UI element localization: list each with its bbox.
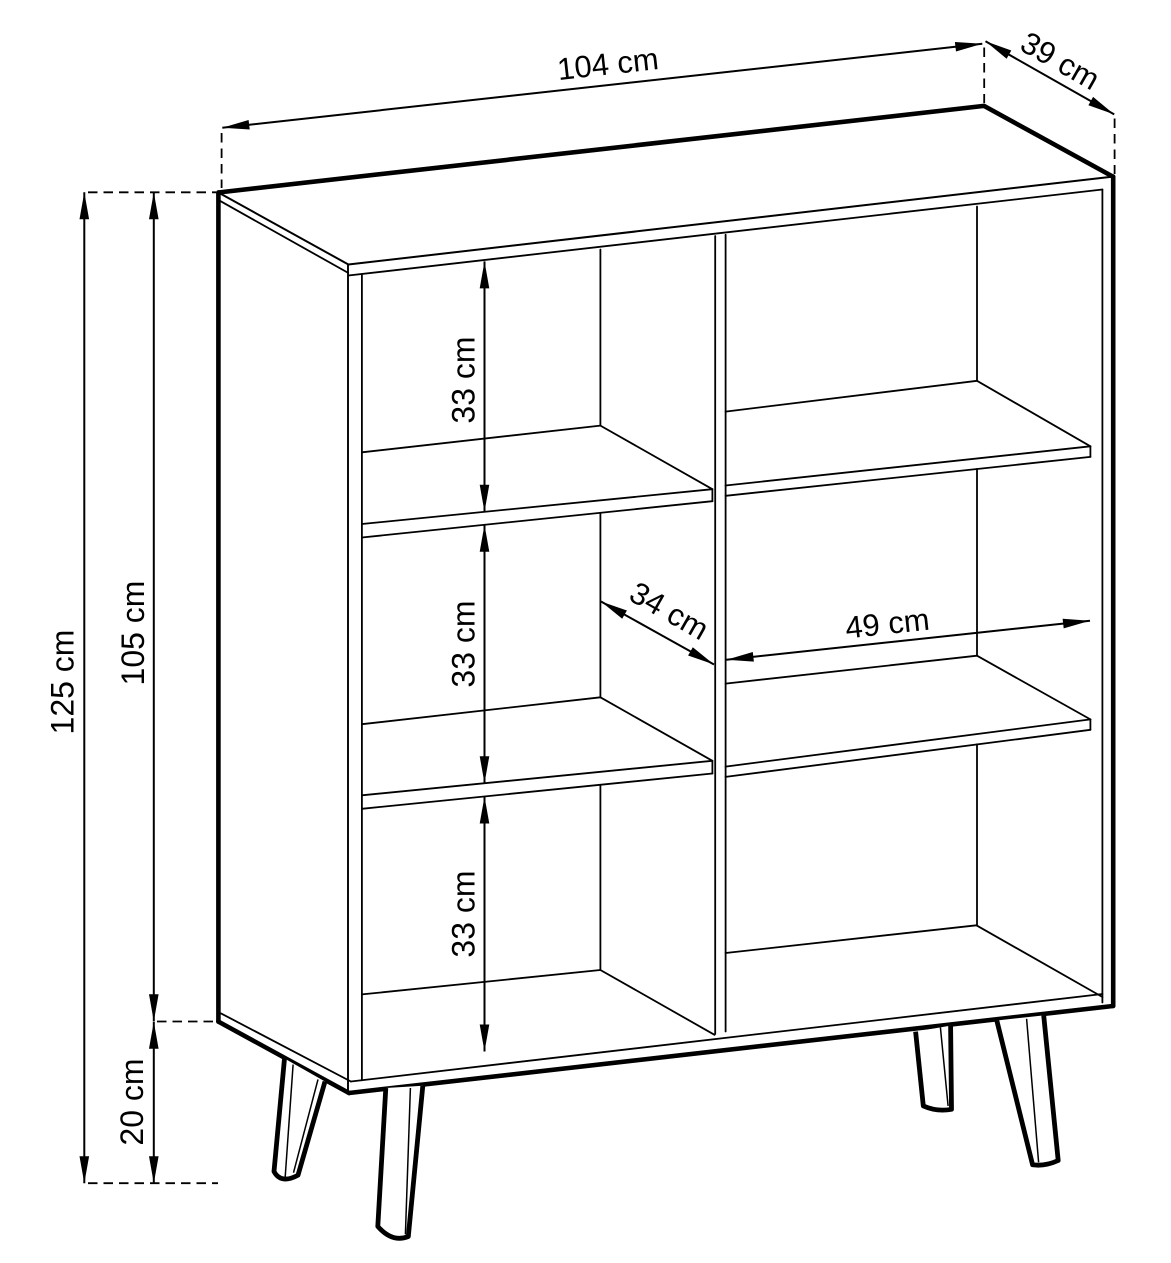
svg-text:105 cm: 105 cm: [115, 581, 151, 686]
svg-text:33 cm: 33 cm: [446, 870, 482, 957]
svg-text:33 cm: 33 cm: [446, 336, 482, 423]
svg-text:125 cm: 125 cm: [45, 630, 81, 735]
svg-text:20 cm: 20 cm: [114, 1058, 150, 1145]
svg-text:33 cm: 33 cm: [446, 600, 482, 687]
